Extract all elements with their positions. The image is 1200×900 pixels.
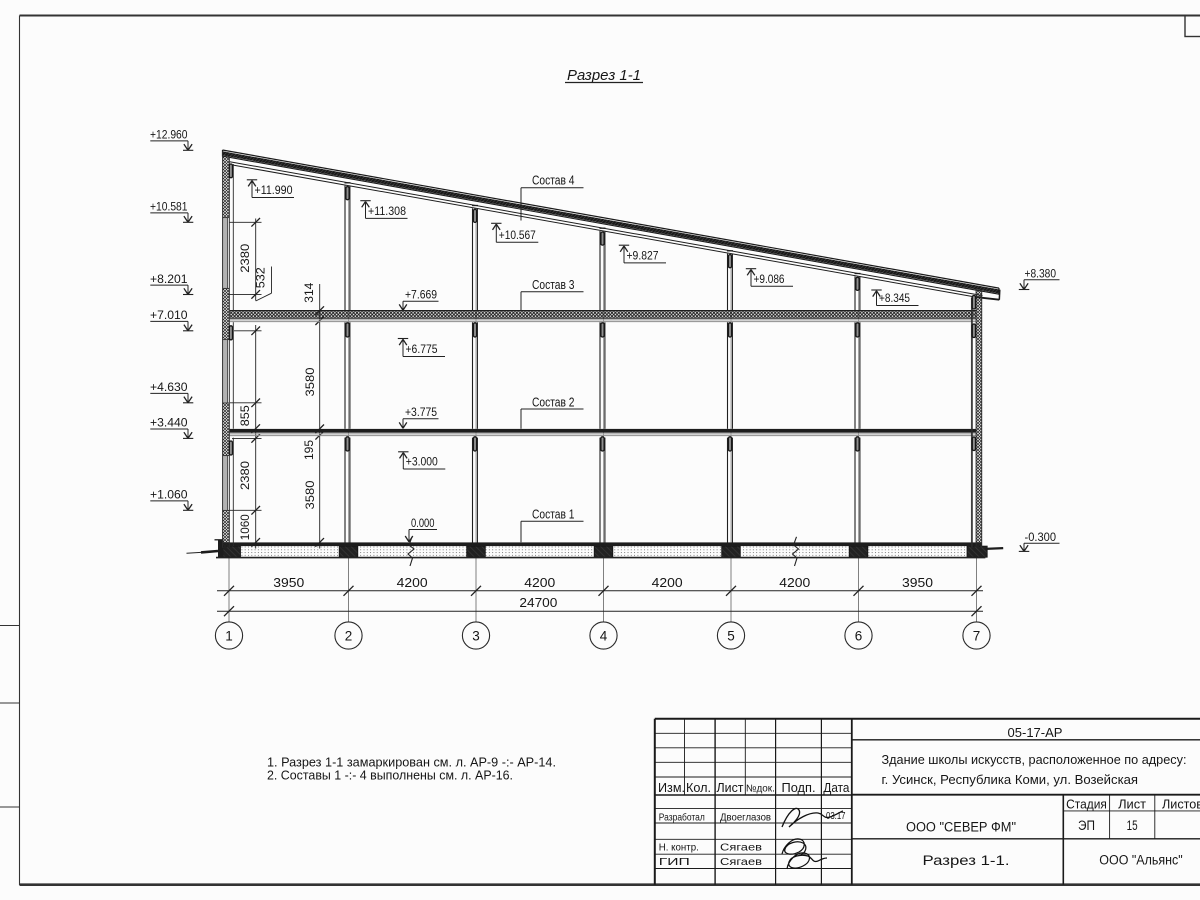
- svg-text:ООО "Альянс": ООО "Альянс": [1099, 853, 1183, 868]
- svg-text:15: 15: [1127, 818, 1138, 833]
- svg-text:7: 7: [973, 628, 981, 643]
- svg-text:Разработал: Разработал: [659, 812, 705, 823]
- svg-text:0.000: 0.000: [411, 518, 435, 530]
- svg-text:+6.775: +6.775: [406, 344, 438, 356]
- svg-text:4200: 4200: [779, 575, 810, 590]
- svg-text:+1.060: +1.060: [150, 490, 188, 502]
- svg-text:+11.308: +11.308: [368, 206, 406, 218]
- svg-text:05-17-АР: 05-17-АР: [1008, 726, 1063, 740]
- svg-text:+8.201: +8.201: [150, 274, 188, 286]
- svg-text:ГИП: ГИП: [659, 857, 690, 868]
- svg-text:+11.990: +11.990: [255, 185, 293, 197]
- svg-text:+7.010: +7.010: [150, 310, 188, 322]
- svg-text:+9.086: +9.086: [754, 274, 785, 286]
- svg-text:+10.581: +10.581: [150, 202, 188, 214]
- svg-text:Н. контр.: Н. контр.: [659, 843, 699, 854]
- svg-text:4200: 4200: [652, 575, 683, 590]
- svg-text:Двоеглазов: Двоеглазов: [720, 812, 771, 823]
- svg-text:3580: 3580: [305, 481, 317, 510]
- svg-text:Кол.: Кол.: [686, 780, 711, 795]
- svg-text:-0.300: -0.300: [1025, 532, 1057, 544]
- svg-text:Состав 2: Состав 2: [532, 396, 575, 410]
- svg-text:2. Составы 1 -:- 4 выполнены с: 2. Составы 1 -:- 4 выполнены см. л. АР-1…: [267, 767, 513, 782]
- svg-text:+10.567: +10.567: [499, 230, 536, 242]
- svg-text:ООО "СЕВЕР ФМ": ООО "СЕВЕР ФМ": [906, 820, 1016, 835]
- svg-text:24700: 24700: [519, 595, 557, 610]
- svg-text:+4.630: +4.630: [150, 382, 188, 394]
- svg-text:Сягаев: Сягаев: [720, 843, 762, 854]
- svg-text:4200: 4200: [397, 575, 428, 590]
- svg-text:+3.775: +3.775: [405, 407, 437, 419]
- svg-text:855: 855: [240, 405, 252, 426]
- svg-text:ЭП: ЭП: [1078, 818, 1095, 833]
- svg-text:+9.827: +9.827: [627, 251, 659, 263]
- svg-text:№док.: №док.: [746, 784, 775, 795]
- svg-text:Дата: Дата: [823, 780, 850, 795]
- svg-text:2: 2: [345, 628, 353, 643]
- svg-text:Здание школы искусств, располо: Здание школы искусств, расположенное по …: [882, 752, 1187, 767]
- svg-text:Стадия: Стадия: [1066, 798, 1107, 812]
- svg-text:Подп.: Подп.: [782, 780, 816, 795]
- svg-text:+3.000: +3.000: [406, 457, 438, 469]
- svg-text:Разрез 1-1: Разрез 1-1: [567, 68, 641, 84]
- svg-text:Лист: Лист: [1118, 798, 1146, 812]
- svg-text:1: 1: [225, 628, 233, 643]
- svg-text:+12.960: +12.960: [150, 130, 188, 142]
- svg-text:3: 3: [472, 628, 480, 643]
- svg-text:195: 195: [304, 440, 316, 460]
- svg-text:Разрез 1-1.: Разрез 1-1.: [923, 853, 1010, 868]
- svg-text:2380: 2380: [240, 244, 252, 273]
- svg-text:+8.380: +8.380: [1025, 269, 1057, 281]
- svg-text:+3.440: +3.440: [150, 418, 188, 430]
- svg-text:Сягаев: Сягаев: [720, 857, 762, 868]
- svg-text:г. Усинск, Республика Коми, ул: г. Усинск, Республика Коми, ул. Возейска…: [882, 772, 1139, 787]
- svg-text:4: 4: [600, 628, 608, 643]
- svg-text:Лист: Лист: [717, 780, 744, 795]
- svg-text:1060: 1060: [240, 514, 252, 540]
- svg-text:3950: 3950: [273, 575, 304, 590]
- svg-text:2380: 2380: [240, 461, 252, 490]
- svg-text:Изм.: Изм.: [658, 780, 685, 795]
- svg-text:Листов: Листов: [1162, 798, 1200, 812]
- svg-text:532: 532: [256, 267, 268, 288]
- svg-text:4200: 4200: [524, 575, 555, 590]
- svg-text:5: 5: [727, 628, 735, 643]
- svg-text:Состав 4: Состав 4: [532, 174, 575, 188]
- svg-text:Состав 3: Состав 3: [532, 278, 575, 292]
- svg-text:+8.345: +8.345: [879, 293, 910, 305]
- svg-text:6: 6: [855, 628, 863, 643]
- svg-text:Состав 1: Состав 1: [532, 508, 575, 522]
- svg-text:+7.669: +7.669: [405, 290, 437, 302]
- svg-text:314: 314: [304, 282, 316, 303]
- svg-text:3950: 3950: [902, 575, 933, 590]
- svg-text:3580: 3580: [305, 368, 317, 397]
